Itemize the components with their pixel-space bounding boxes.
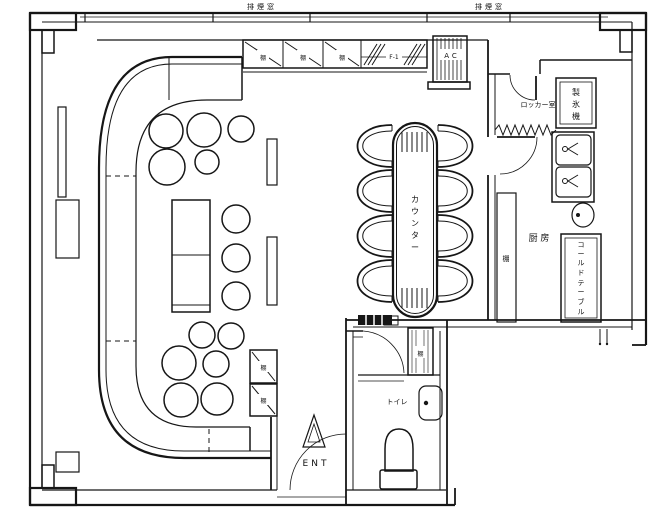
wall-ledge	[56, 200, 79, 258]
kitchen: 厨 房 コ ー ル ド テ ー ブ ル 棚	[497, 132, 601, 322]
side-shelf	[267, 237, 277, 305]
shelf-char-label: 棚	[339, 54, 345, 62]
cold-table-char: ー	[578, 250, 585, 258]
toilet-label: トイレ	[387, 398, 408, 406]
cold-table-char: コ	[578, 241, 585, 249]
service-gate	[358, 315, 398, 325]
round-table	[187, 113, 221, 147]
round-table	[228, 116, 254, 142]
round-tables	[149, 113, 254, 417]
ac-label: AC	[444, 52, 460, 60]
building-shell	[30, 13, 646, 505]
lounge-seating: 棚 棚	[99, 57, 277, 490]
ice-machine-char: 製	[572, 87, 580, 97]
toilet-room: 棚 トイレ	[346, 318, 447, 505]
floor-plan: 棚 棚 棚 F-1 AC	[0, 0, 652, 512]
round-table	[162, 346, 196, 380]
toilet-cabinet: 棚	[408, 328, 433, 375]
side-shelf	[267, 139, 277, 185]
entry-side-wall	[271, 413, 277, 490]
accordion-partition	[495, 125, 556, 135]
cold-table-char: ー	[578, 288, 585, 296]
hand-sink	[572, 203, 594, 227]
round-table	[203, 351, 229, 377]
cold-table-char: ド	[578, 269, 585, 277]
back-shelf-band: 棚 棚 棚 F-1	[243, 40, 427, 72]
ac-unit: AC	[428, 36, 470, 89]
toilet-shelf-label: 棚	[417, 350, 423, 358]
cold-table-char: ル	[578, 259, 585, 267]
smoke-vent-label: 排煙窓	[247, 2, 277, 11]
chair	[438, 215, 473, 257]
chair	[438, 260, 473, 302]
chair	[438, 170, 473, 212]
wall-ledge	[58, 107, 66, 197]
counter-char: ン	[411, 219, 419, 228]
round-table	[218, 323, 244, 349]
shelf-char-label: 棚	[260, 397, 266, 405]
chair	[358, 260, 393, 302]
counter-char: カ	[411, 195, 419, 204]
round-table	[222, 205, 250, 233]
cold-table-char: テ	[578, 279, 585, 287]
round-table	[189, 322, 215, 348]
shelf-box: 棚	[250, 350, 277, 383]
sink-unit	[552, 132, 594, 202]
chair	[358, 215, 393, 257]
smoke-vent-label: 排煙窓	[475, 2, 505, 11]
faucet-icon	[563, 175, 579, 187]
window-mullions	[85, 13, 600, 22]
ice-machine: 製 氷 機	[556, 78, 596, 128]
ice-machine-char: 氷	[572, 99, 580, 109]
counter-char: タ	[411, 231, 419, 240]
counter-char: ー	[411, 243, 419, 252]
shelf-char-label: 棚	[300, 54, 306, 62]
shelf-char-label: 棚	[260, 54, 266, 62]
locker-room-label: ロッカー室	[521, 100, 556, 109]
counter: カ ウ ン タ ー	[393, 123, 437, 317]
wall-ledge	[56, 452, 79, 472]
cold-table: コ ー ル ド テ ー ブ ル	[561, 234, 601, 322]
fixture-code-label: F-1	[389, 54, 399, 61]
kitchen-shelf-label: 棚	[503, 254, 510, 263]
kitchen-partition	[488, 40, 537, 320]
round-table	[149, 149, 185, 185]
pillar-bottom-left	[30, 465, 76, 505]
round-table	[149, 114, 183, 148]
vent-labels: 排煙窓 排煙窓	[247, 2, 505, 11]
ice-machine-char: 機	[572, 111, 580, 121]
round-table	[201, 383, 233, 415]
wall-end-ticks	[599, 329, 608, 345]
cold-table-char: ブ	[578, 297, 585, 306]
entrance: ENT	[290, 415, 346, 490]
round-table	[222, 282, 250, 310]
round-table	[164, 383, 198, 417]
shelf-box: 棚	[250, 384, 277, 416]
floor-plan-drawing: 棚 棚 棚 F-1 AC	[0, 0, 652, 512]
kitchen-shelf: 棚	[497, 193, 516, 322]
round-table	[222, 244, 250, 272]
pillar-top-right	[600, 13, 646, 52]
locker-door	[510, 75, 536, 100]
toilet-fixture	[380, 429, 417, 489]
entrance-marker-icon	[303, 415, 325, 447]
entrance-label: ENT	[303, 459, 330, 469]
faucet-icon	[563, 143, 579, 155]
pillar-top-left	[30, 13, 76, 53]
chair	[438, 125, 473, 167]
kitchen-door	[497, 137, 537, 174]
rect-table	[172, 200, 210, 312]
toilet-hand-basin	[419, 386, 442, 420]
shelf-char-label: 棚	[260, 364, 266, 372]
round-table	[195, 150, 219, 174]
counter-char: ウ	[411, 207, 419, 216]
locker-room: ロッカー室 製 氷 機	[488, 60, 632, 135]
chair	[358, 125, 393, 167]
cold-table-char: ル	[578, 308, 585, 316]
kitchen-label: 厨 房	[529, 232, 550, 244]
chair	[358, 170, 393, 212]
